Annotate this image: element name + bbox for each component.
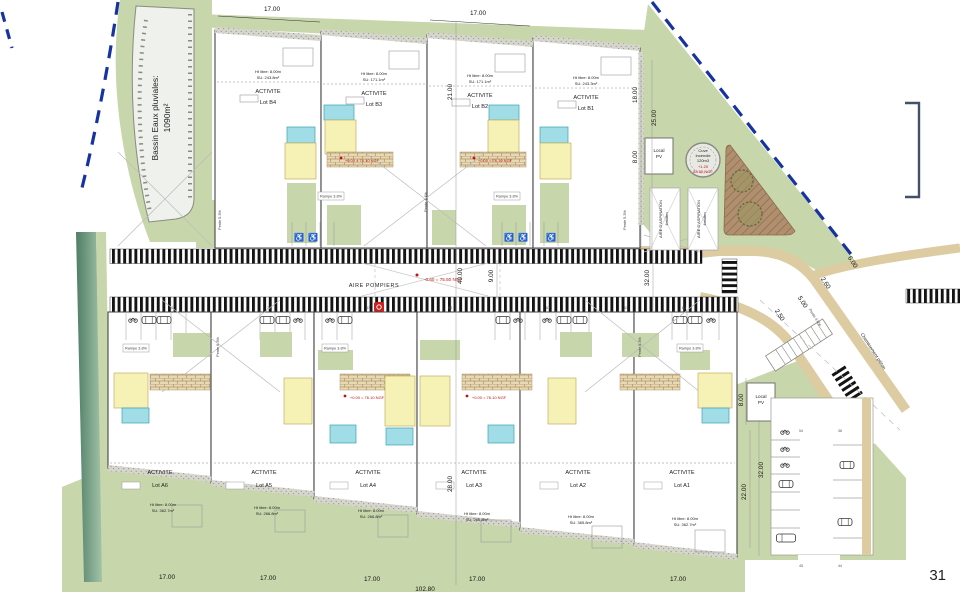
svg-text:102.80: 102.80	[415, 586, 435, 593]
svg-text:Rampe 3.8%: Rampe 3.8%	[320, 195, 343, 199]
cuve-incendie: Cuve Incendie 120m3 +1.20 83.50 NGF	[686, 143, 720, 177]
svg-text:25.00: 25.00	[651, 110, 658, 126]
svg-text:8.00: 8.00	[632, 150, 639, 163]
svg-text:64: 64	[682, 306, 686, 310]
svg-text:4mx8m: 4mx8m	[664, 212, 669, 226]
svg-text:SU: 365.8m²: SU: 365.8m²	[570, 520, 593, 525]
tree-icon	[738, 202, 762, 226]
svg-text:28.00: 28.00	[447, 476, 454, 492]
svg-text:58: 58	[448, 306, 452, 310]
svg-text:17.00: 17.00	[470, 10, 486, 17]
svg-text:Lot A1: Lot A1	[674, 483, 690, 489]
svg-text:ACTIVITE: ACTIVITE	[255, 89, 280, 95]
svg-text:45: 45	[799, 564, 803, 568]
parking-lot: 54 36 45 44	[771, 398, 873, 593]
page-number: 31	[929, 567, 946, 584]
svg-text:67: 67	[546, 306, 550, 310]
svg-text:32.00: 32.00	[758, 462, 765, 478]
svg-text:SU: 266.8m²: SU: 266.8m²	[466, 517, 489, 522]
svg-text:SU: 243.8m²: SU: 243.8m²	[257, 75, 280, 80]
svg-text:Ht libre: 8.00m: Ht libre: 8.00m	[150, 502, 177, 507]
crosswalk-top	[722, 259, 737, 293]
svg-text:SU: 266.8m²: SU: 266.8m²	[256, 511, 279, 516]
pente44-label: Pente 4.4%	[424, 192, 428, 212]
svg-text:40.00: 40.00	[457, 268, 464, 284]
aire-pompiers-label: AIRE POMPIERS	[349, 283, 399, 289]
svg-text:17.00: 17.00	[260, 575, 276, 582]
svg-text:SU: 243.3m²: SU: 243.3m²	[575, 81, 598, 86]
svg-text:Ht libre: 8.00m: Ht libre: 8.00m	[467, 73, 494, 78]
tree-icon	[731, 170, 753, 192]
svg-text:ACTIVITE: ACTIVITE	[361, 91, 386, 97]
svg-text:Rampe 3.8%: Rampe 3.8%	[324, 347, 347, 351]
svg-text:Rampe 3.8%: Rampe 3.8%	[125, 347, 148, 351]
svg-text:Ht libre: 8.00m: Ht libre: 8.00m	[255, 69, 282, 74]
local-pv-bottom-1: Local	[756, 394, 767, 399]
svg-text:♿: ♿	[518, 232, 528, 242]
svg-text:120m3: 120m3	[697, 158, 710, 163]
svg-text:ACTIVITE: ACTIVITE	[467, 93, 492, 99]
local-pv-bottom-2: PV	[758, 400, 765, 405]
basin-label-line1: Bassin Eaux pluviales:	[150, 75, 160, 160]
entry-level-b-left: +0.00 = 76.10 NGF	[345, 158, 380, 163]
pente53-left: Pente 5.3%	[218, 210, 222, 230]
svg-text:Lot B3: Lot B3	[366, 102, 382, 108]
svg-text:57: 57	[366, 306, 370, 310]
svg-text:32.00: 32.00	[644, 270, 651, 286]
svg-text:44: 44	[838, 564, 842, 568]
svg-text:17.00: 17.00	[364, 576, 380, 583]
svg-text:♿: ♿	[504, 232, 514, 242]
svg-text:SU: 362.7m²: SU: 362.7m²	[674, 522, 697, 527]
entry-level-a-left: +0.00 = 76.10 NGF	[350, 395, 385, 400]
svg-text:ACTIVITE: ACTIVITE	[573, 95, 598, 101]
section-bracket	[905, 103, 919, 197]
svg-text:Lot B1: Lot B1	[578, 106, 594, 112]
pente53-right: Pente 5.3%	[623, 210, 627, 230]
svg-text:Ht libre: 8.00m: Ht libre: 8.00m	[464, 511, 491, 516]
svg-text:AIRE D'ASPIRATION: AIRE D'ASPIRATION	[696, 200, 701, 238]
svg-text:21.00: 21.00	[447, 84, 454, 100]
svg-text:17.00: 17.00	[670, 576, 686, 583]
svg-text:♿: ♿	[546, 232, 556, 242]
local-pv-top-2: PV	[656, 154, 663, 159]
svg-text:Lot A5: Lot A5	[256, 483, 272, 489]
pente63-right: Pente 6.3%	[638, 337, 642, 357]
svg-text:ACTIVITE: ACTIVITE	[669, 470, 694, 476]
entry-level-a-right: +0.00 = 76.10 NGF	[472, 395, 507, 400]
local-pv-top-1: Local	[654, 148, 665, 153]
svg-text:Ht libre: 8.00m: Ht libre: 8.00m	[358, 508, 385, 513]
hydrant-icon	[374, 302, 384, 312]
svg-text:Ht libre: 8.00m: Ht libre: 8.00m	[254, 505, 281, 510]
svg-text:SU: 362.7m²: SU: 362.7m²	[152, 508, 175, 513]
svg-text:ACTIVITE: ACTIVITE	[461, 470, 486, 476]
pente63-left: Pente 6.3%	[216, 337, 220, 357]
svg-text:Rampe 3.8%: Rampe 3.8%	[496, 195, 519, 199]
svg-text:Lot B4: Lot B4	[260, 100, 276, 106]
svg-text:Ht libre: 8.00m: Ht libre: 8.00m	[361, 71, 388, 76]
svg-text:Rampe 3.8%: Rampe 3.8%	[679, 347, 702, 351]
svg-text:18.00: 18.00	[632, 87, 639, 103]
svg-text:ACTIVITE: ACTIVITE	[355, 470, 380, 476]
svg-text:17.00: 17.00	[469, 576, 485, 583]
svg-text:Ht libre: 8.00m: Ht libre: 8.00m	[573, 75, 600, 80]
svg-text:ACTIVITE: ACTIVITE	[147, 470, 172, 476]
svg-text:Ht libre: 8.00m: Ht libre: 8.00m	[568, 514, 595, 519]
svg-text:17.00: 17.00	[159, 574, 175, 581]
svg-text:ACTIVITE: ACTIVITE	[251, 470, 276, 476]
site-plan-page: Bassin Eaux pluviales: 1090m² Ch	[0, 0, 960, 600]
svg-text:Ht libre: 8.00m: Ht libre: 8.00m	[672, 516, 699, 521]
svg-text:SU: 171.1m²: SU: 171.1m²	[363, 77, 386, 82]
svg-text:4mx8m: 4mx8m	[702, 212, 707, 226]
basin-label-line2: 1090m²	[162, 103, 172, 132]
svg-text:Lot B2: Lot B2	[472, 104, 488, 110]
svg-text:9.00: 9.00	[488, 269, 495, 282]
svg-text:36: 36	[838, 429, 842, 433]
svg-text:Lot A4: Lot A4	[360, 483, 376, 489]
svg-text:54: 54	[799, 429, 803, 433]
svg-text:♿: ♿	[308, 232, 318, 242]
svg-text:22.00: 22.00	[741, 484, 748, 500]
svg-text:♿: ♿	[294, 232, 304, 242]
svg-text:8.00: 8.00	[738, 393, 745, 406]
entry-level-b-right: +0.00 = 76.10 NGF	[478, 158, 513, 163]
svg-text:Lot A6: Lot A6	[152, 483, 168, 489]
svg-text:AIRE D'ASPIRATION: AIRE D'ASPIRATION	[658, 200, 663, 238]
svg-text:SU: 266.8m²: SU: 266.8m²	[360, 514, 383, 519]
svg-text:83.50 NGF: 83.50 NGF	[693, 169, 713, 174]
svg-text:Lot A2: Lot A2	[570, 483, 586, 489]
svg-text:SU: 171.1m²: SU: 171.1m²	[469, 79, 492, 84]
svg-text:17.00: 17.00	[264, 6, 280, 13]
svg-text:61: 61	[624, 306, 628, 310]
svg-text:Lot A3: Lot A3	[466, 483, 482, 489]
site-plan-svg: Bassin Eaux pluviales: 1090m² Ch	[0, 0, 960, 600]
svg-text:ACTIVITE: ACTIVITE	[565, 470, 590, 476]
